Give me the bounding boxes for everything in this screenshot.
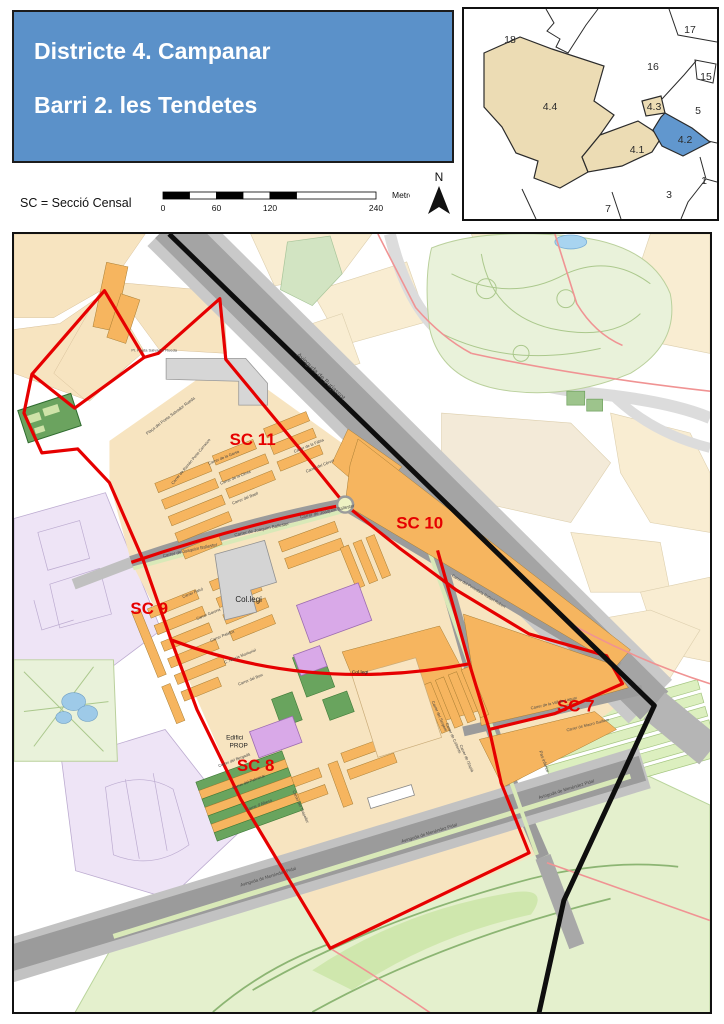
title-box: Districte 4. Campanar Barri 2. les Tende… — [12, 10, 454, 163]
main-map: SC 11 SC 10 SC 9 SC 8 SC 7 Col.legi Col.… — [12, 232, 712, 1014]
label-edifici-prop-2: PROP — [230, 742, 248, 749]
inset-label-41: 4.1 — [630, 144, 645, 156]
inset-label-16: 16 — [647, 61, 659, 73]
inset-label-5: 5 — [695, 105, 701, 117]
label-sc10: SC 10 — [396, 513, 443, 532]
inset-label-17: 17 — [684, 24, 696, 36]
inset-label-15: 15 — [700, 71, 712, 83]
label-collegi: Col.legi — [235, 595, 262, 604]
inset-label-44: 4.4 — [543, 101, 558, 113]
layer-park-left — [14, 660, 117, 761]
scale-tick-240: 240 — [369, 203, 383, 213]
map-sheet: Districte 4. Campanar Barri 2. les Tende… — [0, 0, 724, 1024]
inset-label-1: 1 — [701, 175, 707, 187]
sc-abbreviation-note: SC = Secció Censal — [20, 196, 132, 210]
label-sc11: SC 11 — [230, 430, 276, 449]
inset-label-42: 4.2 — [678, 134, 693, 146]
inset-label-18: 18 — [504, 34, 516, 46]
scale-tick-0: 0 — [161, 203, 166, 213]
inset-label-3: 3 — [666, 189, 672, 201]
north-label: N — [435, 170, 444, 184]
scale-bar: 0 60 120 240 Metres — [150, 184, 410, 218]
barri-title: Barri 2. les Tendetes — [34, 92, 452, 119]
inset-label-7: 7 — [605, 203, 611, 215]
inset-locator-map: 18 17 16 15 5 1 3 7 4.4 4.3 4.2 4.1 — [462, 7, 719, 221]
scale-unit: Metres — [392, 190, 410, 200]
scale-tick-120: 120 — [263, 203, 277, 213]
label-sc9: SC 9 — [130, 599, 168, 618]
svg-text:Pl. Poeta Salvador Rueda: Pl. Poeta Salvador Rueda — [131, 347, 177, 352]
north-arrow: N — [424, 168, 454, 218]
north-arrow-glyph — [428, 186, 450, 214]
district-title: Districte 4. Campanar — [34, 38, 452, 65]
scale-tick-60: 60 — [212, 203, 222, 213]
inset-label-43: 4.3 — [647, 101, 662, 113]
inset-district4-shapes — [484, 37, 710, 188]
label-edifici-prop-1: Edifici — [226, 734, 243, 741]
label-collegi-2: Col.legi — [352, 670, 369, 676]
